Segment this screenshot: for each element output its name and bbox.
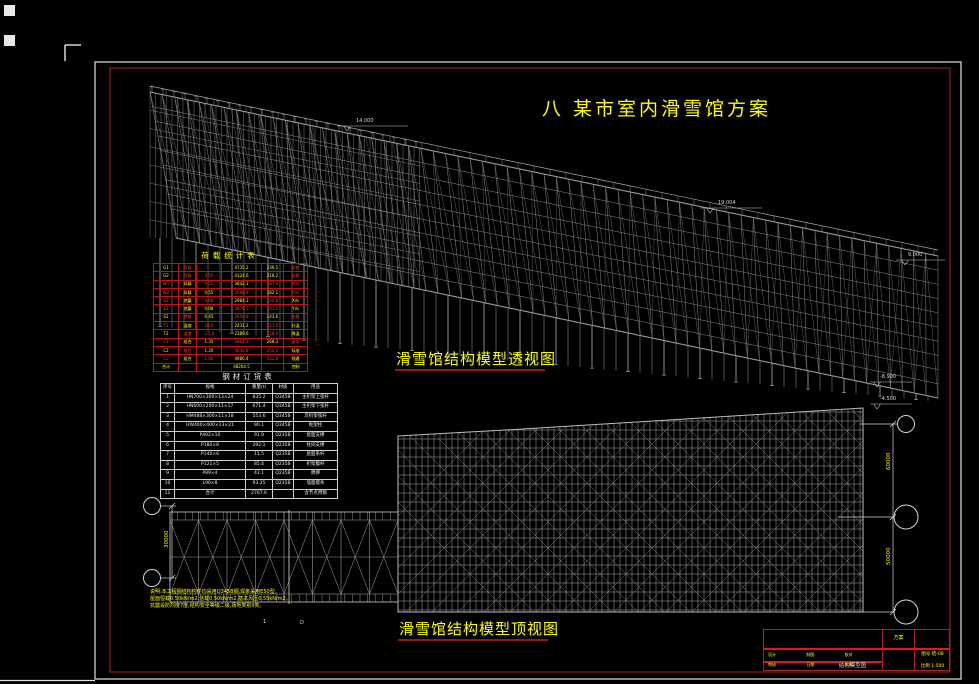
svg-text:30000: 30000	[164, 530, 170, 548]
general-notes: 说明:本工程钢结构构件均采用Q345B钢,焊条采用E50型。屋面恒载0.50kN…	[150, 589, 340, 610]
table-row: 7P140×611.5Q235B屋面系杆	[161, 451, 338, 461]
perspective-caption: 滑雪馆结构模型透视图	[396, 348, 556, 369]
table-row: T1温度25.02431.2121.5升温	[154, 322, 308, 330]
caption-underline	[395, 369, 545, 371]
table-row: 1HN700×300×13×24835.2Q345B主桁架上弦杆	[161, 393, 338, 403]
table-row: C2组合1.205642.8254.1标准	[154, 346, 308, 354]
sheet-frame	[0, 5, 961, 681]
load-table: G1恒载4735.2236.5全楼G2活载3.504124.6218.2全楼W1…	[153, 263, 308, 372]
svg-text:14.000: 14.000	[356, 118, 374, 124]
titleblock-field-label: 审核	[766, 662, 804, 668]
svg-text:50000: 50000	[886, 547, 892, 565]
titleblock-number-value: 结-08	[932, 652, 944, 657]
table-row: E2地震0.082876.5161.2Y向	[154, 305, 308, 313]
table-row: S1雪载0.452654.8143.6全楼	[154, 313, 308, 321]
cad-sheet: 60000500003000014.00019.0049.000-8.900-4…	[0, 0, 979, 684]
titleblock-scale-value: 1:500	[931, 664, 944, 669]
top-view-caption: 滑雪馆结构模型顶视图	[399, 618, 559, 639]
table-row: 5P402×1091.9Q235B屋面支撑	[161, 431, 338, 441]
table-row: W1风载0.553642.1187.4X向	[154, 280, 308, 288]
note-line: 屋面恒载0.50kN/m2,活载0.50kN/m2,基本风压0.55kN/m2。	[150, 596, 340, 603]
table-row: 8P121×585.4Q235B桁架腹杆	[161, 460, 338, 470]
table-row: T2温度-25.02389.6118.4降温	[154, 330, 308, 338]
title-block: 方案 结构模型图 图号 结-08 比例 1:500 设计制图校对审核日期工号	[763, 629, 950, 671]
table-row: C1组合1.355864.2268.3基本	[154, 338, 308, 346]
note-line: 抗震设防烈度7度,结构安全等级二级,场地类别II类。	[150, 603, 340, 610]
table-header-row: 序号规格重量(t)材质用途	[161, 384, 338, 394]
table-row: C3组合1.004986.4232.6频遇	[154, 355, 308, 363]
table-row: W2风载0.553598.4182.1Y向	[154, 288, 308, 296]
table-row: 2HN600×200×11×17671.4Q345B主桁架下弦杆	[161, 403, 338, 413]
titleblock-field-label: 日期	[804, 662, 842, 668]
table-row: 10L90×893.25Q235B墙面檩条	[161, 479, 338, 489]
table-row: 4HW400×400×13×2190.1Q345B框架柱	[161, 422, 338, 432]
table-row: E1地震0.082984.3164.8X向	[154, 297, 308, 305]
svg-text:60000: 60000	[886, 452, 892, 470]
titleblock-scale: 比例 1:500	[916, 663, 949, 669]
sheet-title: 八 某市室内滑雪馆方案	[542, 94, 771, 121]
titleblock-field-label: 制图	[804, 652, 842, 658]
svg-text:-8.900: -8.900	[880, 374, 896, 380]
table-row: G1恒载4735.2236.5全楼	[154, 264, 308, 272]
load-table-title: 荷载统计表	[153, 250, 307, 261]
svg-text:-4.500: -4.500	[880, 396, 896, 402]
titleblock-field-label: 设计	[766, 652, 804, 658]
titleblock-field-label: 工号	[843, 662, 881, 668]
titleblock-number: 图号 结-08	[916, 651, 949, 657]
svg-text:D: D	[300, 620, 304, 626]
titleblock-fields: 设计制图校对审核日期工号	[766, 650, 881, 670]
steel-table-title: 钢材订货表	[160, 371, 337, 382]
caption-underline	[398, 639, 548, 641]
cad-drawing: 60000500003000014.00019.0049.000-8.900-4…	[0, 0, 979, 684]
svg-text:9.000: 9.000	[908, 252, 922, 258]
table-row: 6P180×8292.1Q235B柱间支撑	[161, 441, 338, 451]
table-row: 3HM488×300×11×18553.6Q345B次桁架弦杆	[161, 412, 338, 422]
table-row: G2活载3.504124.6218.2全楼	[154, 272, 308, 280]
titleblock-stage: 方案	[882, 634, 915, 641]
table-row: 11合计2767.6含节点用钢	[161, 489, 338, 499]
note-line: 说明:本工程钢结构构件均采用Q345B钢,焊条采用E50型。	[150, 589, 340, 596]
table-row: 9P89×443.1Q235B隅撑	[161, 470, 338, 480]
svg-text:19.004: 19.004	[718, 200, 736, 206]
titleblock-scale-label: 比例	[921, 664, 930, 669]
svg-text:1: 1	[263, 619, 266, 625]
titleblock-number-label: 图号	[921, 652, 930, 657]
steel-table: 序号规格重量(t)材质用途1HN700×300×13×24835.2Q345B主…	[160, 383, 338, 499]
titleblock-field-label: 校对	[843, 652, 881, 658]
